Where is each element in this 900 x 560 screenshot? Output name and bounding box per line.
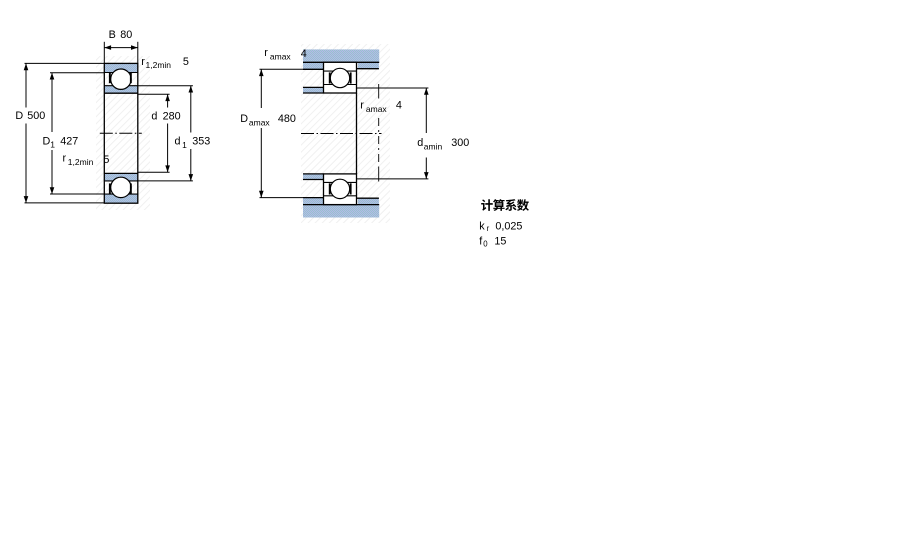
- svg-text:80: 80: [120, 29, 132, 41]
- svg-text:r: r: [63, 152, 67, 164]
- svg-text:r: r: [264, 47, 268, 59]
- svg-text:4: 4: [301, 48, 307, 60]
- svg-text:r: r: [487, 224, 490, 233]
- svg-text:amin: amin: [424, 142, 443, 152]
- svg-text:5: 5: [183, 56, 189, 68]
- svg-text:300: 300: [451, 137, 469, 149]
- svg-text:amax: amax: [366, 104, 388, 114]
- svg-text:480: 480: [278, 113, 296, 125]
- svg-text:amax: amax: [249, 117, 271, 127]
- svg-text:1: 1: [182, 140, 187, 150]
- svg-text:1: 1: [50, 140, 55, 150]
- svg-text:4: 4: [396, 100, 402, 112]
- svg-text:500: 500: [27, 110, 45, 122]
- svg-text:d: d: [151, 110, 157, 122]
- svg-text:D: D: [240, 113, 248, 125]
- svg-text:353: 353: [192, 136, 210, 148]
- svg-text:280: 280: [163, 110, 181, 122]
- svg-text:d: d: [175, 136, 181, 148]
- svg-text:5: 5: [103, 154, 109, 166]
- svg-text:427: 427: [60, 135, 78, 147]
- svg-text:r: r: [360, 99, 364, 111]
- svg-text:1,2min: 1,2min: [146, 60, 172, 70]
- svg-text:B: B: [109, 29, 116, 41]
- svg-text:0: 0: [483, 239, 488, 248]
- svg-text:1,2min: 1,2min: [68, 157, 94, 167]
- svg-text:0,025: 0,025: [495, 220, 522, 232]
- svg-text:d: d: [417, 137, 423, 149]
- svg-text:k: k: [479, 220, 485, 232]
- svg-text:amax: amax: [270, 52, 292, 62]
- svg-text:D: D: [15, 110, 23, 122]
- svg-text:15: 15: [494, 236, 506, 248]
